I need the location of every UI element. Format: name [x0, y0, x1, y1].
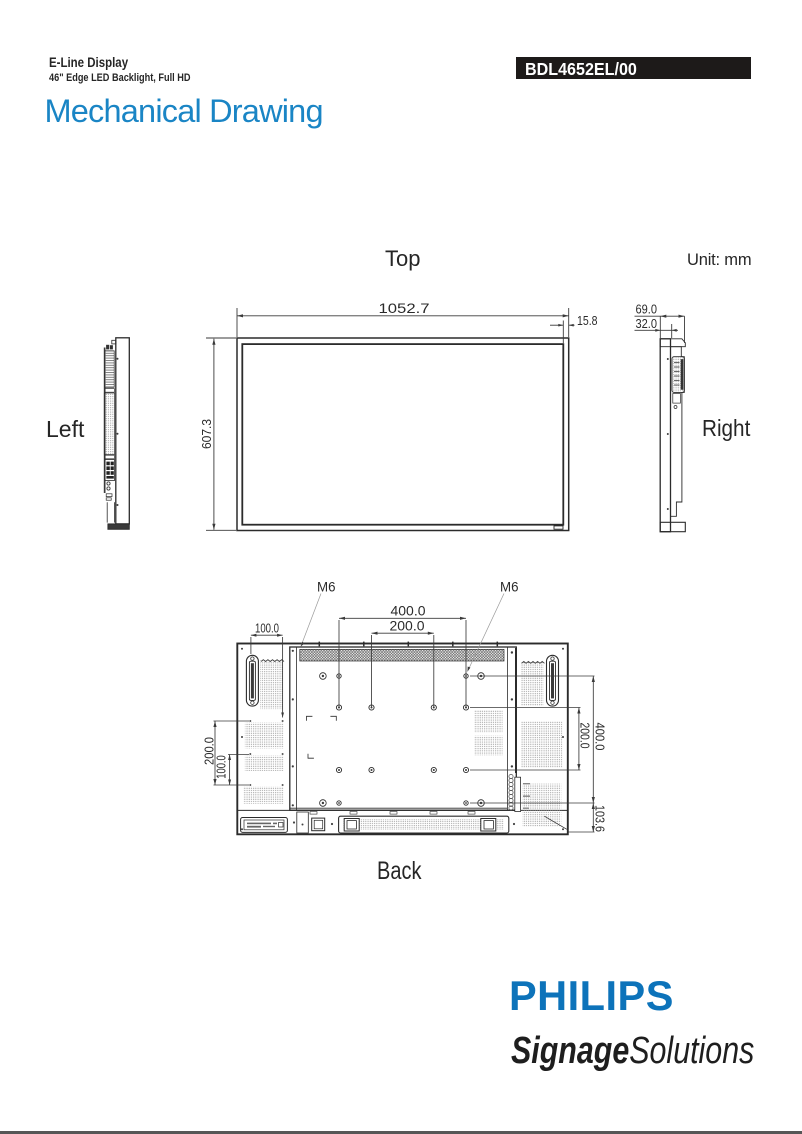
- svg-text:200.0: 200.0: [390, 618, 425, 634]
- svg-text:100.0: 100.0: [255, 621, 279, 636]
- svg-text:607.3: 607.3: [199, 419, 214, 449]
- svg-text:32.0: 32.0: [636, 316, 658, 331]
- svg-text:1052.7: 1052.7: [379, 300, 430, 316]
- svg-text:200.0: 200.0: [578, 723, 593, 749]
- svg-text:400.0: 400.0: [593, 723, 608, 751]
- svg-text:400.0: 400.0: [391, 603, 426, 619]
- svg-text:15.8: 15.8: [577, 313, 598, 328]
- svg-text:100.0: 100.0: [215, 755, 229, 779]
- svg-text:M6: M6: [500, 580, 519, 595]
- svg-text:M6: M6: [317, 580, 336, 595]
- svg-text:103.6: 103.6: [593, 805, 608, 832]
- svg-text:69.0: 69.0: [636, 302, 658, 317]
